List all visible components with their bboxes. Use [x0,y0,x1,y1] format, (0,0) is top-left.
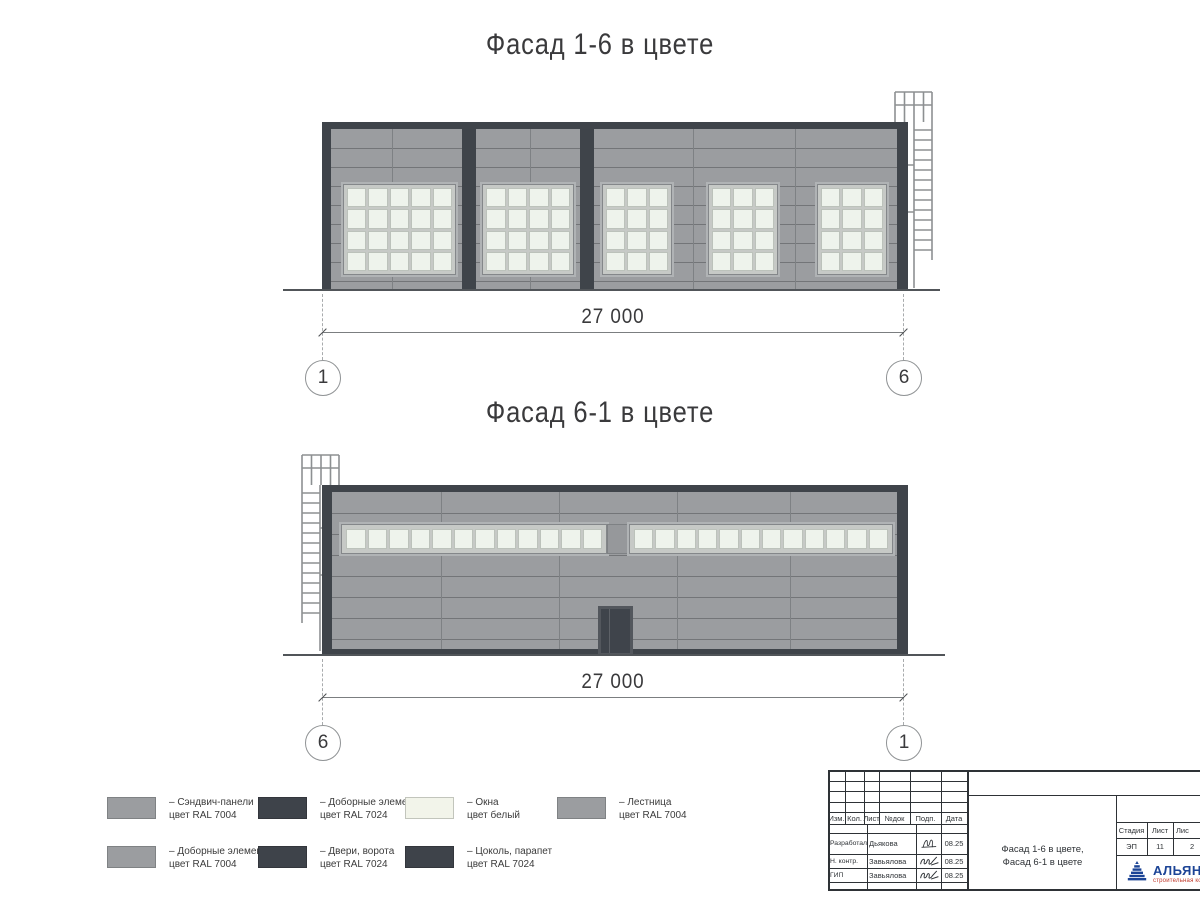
window-pane [433,188,452,207]
window-pane [529,188,549,207]
window-pane [847,529,866,549]
window-pane [432,529,452,549]
legend-label: – Лестницацвет RAL 7004 [619,796,687,822]
window-pane [368,252,387,271]
window-pane [627,231,646,250]
axis-number: 6 [899,367,910,389]
window [343,184,456,275]
window-pane [733,209,752,228]
window-pane [529,252,549,271]
axis-bubble: 6 [305,725,341,761]
window-pane [869,529,888,549]
window-pane [864,188,883,207]
corner-trim-left [322,485,332,656]
window-pane [712,252,731,271]
stamp-stage-value: ЭП [1116,839,1147,854]
signature-icon [920,834,940,853]
window-pane [762,529,781,549]
stamp-stage-label: Стадия [1116,823,1147,838]
extension-line [903,659,904,725]
panel-joint [693,129,694,291]
window-pane [529,231,549,250]
stamp-role: ГИП [830,868,867,882]
axis-bubble: 1 [305,360,341,396]
dimension-label: 27 000 [523,305,703,329]
window-pane [627,209,646,228]
ground-line [283,289,940,291]
stamp-col-kol: Кол. [845,813,864,824]
window-pane [486,188,506,207]
window-pane [551,231,571,250]
title-block: Изм. Кол. Лист №док Подп. Дата Разработа… [828,770,1200,891]
parapet [322,122,908,129]
legend-swatch [557,797,606,819]
window-pane [551,188,571,207]
panel-joint [441,492,442,649]
window-pane [551,209,571,228]
window-pane [529,209,549,228]
window-pane [733,188,752,207]
window-pane [368,231,387,250]
window-pane [475,529,495,549]
legend-swatch [258,846,307,868]
stamp-col-podp: Подп. [910,813,941,824]
stamp-date: 08.25 [941,854,967,868]
drawing-sheet: Фасад 1-6 в цвете 27 000 1 6 Фасад 6-1 в [0,0,1200,900]
window-pane [390,209,409,228]
window-pane [634,529,653,549]
pilaster [462,122,476,291]
window-pane [864,252,883,271]
window-pane [347,231,366,250]
legend-label: – Окнацвет белый [467,796,520,822]
panel-joint [559,492,560,649]
stamp-sheet-label: Лист [1147,823,1173,838]
window-pane [755,252,774,271]
ground-line [283,654,945,656]
window-pane [368,209,387,228]
window-pane [755,188,774,207]
window-pane [627,252,646,271]
window-pane [821,209,840,228]
dimension-label: 27 000 [523,670,703,694]
window-pane [733,231,752,250]
window-pane [606,188,625,207]
window-pane [733,252,752,271]
window-pane [842,231,861,250]
window-pane [821,188,840,207]
window-pane [712,188,731,207]
axis-bubble: 1 [886,725,922,761]
dimension-line [322,332,904,333]
window-pane [486,209,506,228]
window-pane [454,529,474,549]
window-pane [389,529,409,549]
stamp-col-list: Лист [864,813,879,824]
extension-line [322,659,323,725]
window-pane [486,252,506,271]
window-pane [712,209,731,228]
alliance-logo-icon [1125,860,1149,884]
signature-icon [919,855,940,867]
panel-insert [607,524,629,554]
legend-label: – Сэндвич-панелицвет RAL 7004 [169,796,254,822]
corner-trim-right [897,122,908,291]
window-pane [411,252,430,271]
window-pane [783,529,802,549]
window-pane [606,209,625,228]
window [708,184,778,275]
window-pane [497,529,517,549]
stamp-name: Завьялова [869,854,916,868]
window-pane [411,231,430,250]
door-leaf-joint [609,609,610,653]
parapet [322,485,908,492]
legend-swatch [107,846,156,868]
window-pane [551,252,571,271]
window-pane [368,529,388,549]
window-pane [655,529,674,549]
window-pane [508,252,528,271]
window-pane [755,209,774,228]
legend-swatch [405,846,454,868]
ribbon-window [629,524,893,554]
stamp-sheets-value: 2 [1190,839,1200,854]
window-pane [486,231,506,250]
window-pane [842,209,861,228]
window-pane [698,529,717,549]
window-pane [411,529,431,549]
window-pane [368,188,387,207]
window-pane [433,209,452,228]
window-pane [411,209,430,228]
window-pane [411,188,430,207]
stamp-date: 08.25 [941,833,967,854]
axis-number: 6 [318,732,329,754]
stamp-col-data: Дата [941,813,967,824]
axis-number: 1 [899,732,910,754]
corner-trim-left [322,122,331,291]
legend-label: – Цоколь, парапетцвет RAL 7024 [467,845,552,871]
window [602,184,672,275]
window-pane [390,252,409,271]
ribbon-window [341,524,607,554]
dimension-line [322,697,904,698]
facade-6-1-title: Фасад 6-1 в цвете [90,396,1110,430]
window-pane [433,231,452,250]
stamp-name: Завьялова [869,868,916,882]
window-pane [649,252,668,271]
window-pane [649,231,668,250]
window-pane [561,529,581,549]
stamp-role: Н. контр. [830,854,867,868]
stamp-col-ndoc: №док [879,813,910,824]
axis-number: 1 [318,367,329,389]
window-pane [864,231,883,250]
window [482,184,574,275]
window-pane [508,188,528,207]
stamp-doc-title: Фасад 1-6 в цвете, Фасад 6-1 в цвете [969,828,1116,884]
window-pane [719,529,738,549]
stamp-sheet-value: 11 [1147,839,1173,854]
window-pane [347,188,366,207]
window-pane [347,209,366,228]
window-pane [390,231,409,250]
window-pane [540,529,560,549]
window-pane [583,529,603,549]
panel-joint [790,492,791,649]
window-pane [347,252,366,271]
window-pane [864,209,883,228]
window-pane [390,188,409,207]
window [817,184,887,275]
stamp-name: Дьякова [869,833,916,854]
stamp-role: Разработал [830,833,867,854]
window-pane [346,529,366,549]
window-pane [712,231,731,250]
door [598,606,633,656]
legend-label: – Двери, воротацвет RAL 7024 [320,845,394,871]
facade-1-6-title: Фасад 1-6 в цвете [90,28,1110,62]
logo-wordmark: АЛЬЯН строительная комп [1153,863,1200,884]
window-pane [433,252,452,271]
window-pane [606,231,625,250]
window-pane [649,209,668,228]
panel-joint [677,492,678,649]
window-pane [518,529,538,549]
legend-swatch [107,797,156,819]
window-pane [821,231,840,250]
window-pane [826,529,845,549]
axis-bubble: 6 [886,360,922,396]
legend-swatch [258,797,307,819]
window-pane [627,188,646,207]
extension-line [903,294,904,360]
legend-swatch [405,797,454,819]
stamp-col-izm: Изм. [828,813,845,824]
corner-trim-right [897,485,908,656]
pilaster [580,122,594,291]
window-pane [805,529,824,549]
window-pane [508,231,528,250]
window-pane [649,188,668,207]
stamp-date: 08.25 [941,868,967,882]
stamp-sheets-label: Лис [1176,823,1200,838]
window-pane [821,252,840,271]
window-pane [508,209,528,228]
window-pane [842,252,861,271]
window-pane [606,252,625,271]
window-pane [677,529,696,549]
window-pane [842,188,861,207]
extension-line [322,294,323,360]
signature-icon [919,869,940,881]
window-pane [755,231,774,250]
panel-joint [795,129,796,291]
window-pane [741,529,760,549]
